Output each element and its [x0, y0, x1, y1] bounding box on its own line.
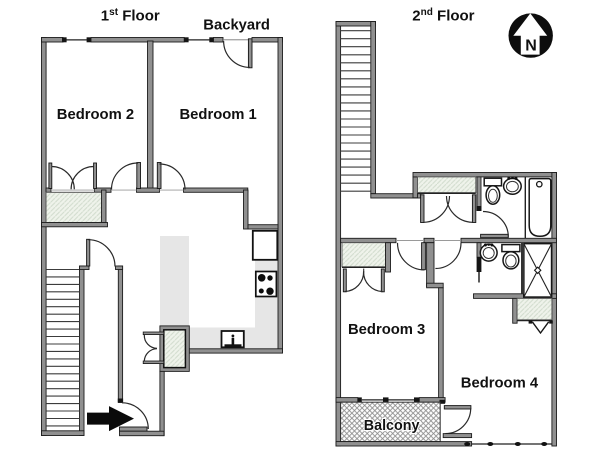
svg-text:Bedroom 2: Bedroom 2: [57, 107, 134, 123]
svg-text:Balcony: Balcony: [364, 418, 420, 434]
svg-text:Bedroom 3: Bedroom 3: [348, 322, 425, 338]
svg-text:N: N: [525, 37, 537, 54]
svg-text:Backyard: Backyard: [203, 18, 270, 34]
svg-text:Bedroom 4: Bedroom 4: [461, 375, 539, 391]
svg-text:Bedroom 1: Bedroom 1: [180, 107, 257, 123]
